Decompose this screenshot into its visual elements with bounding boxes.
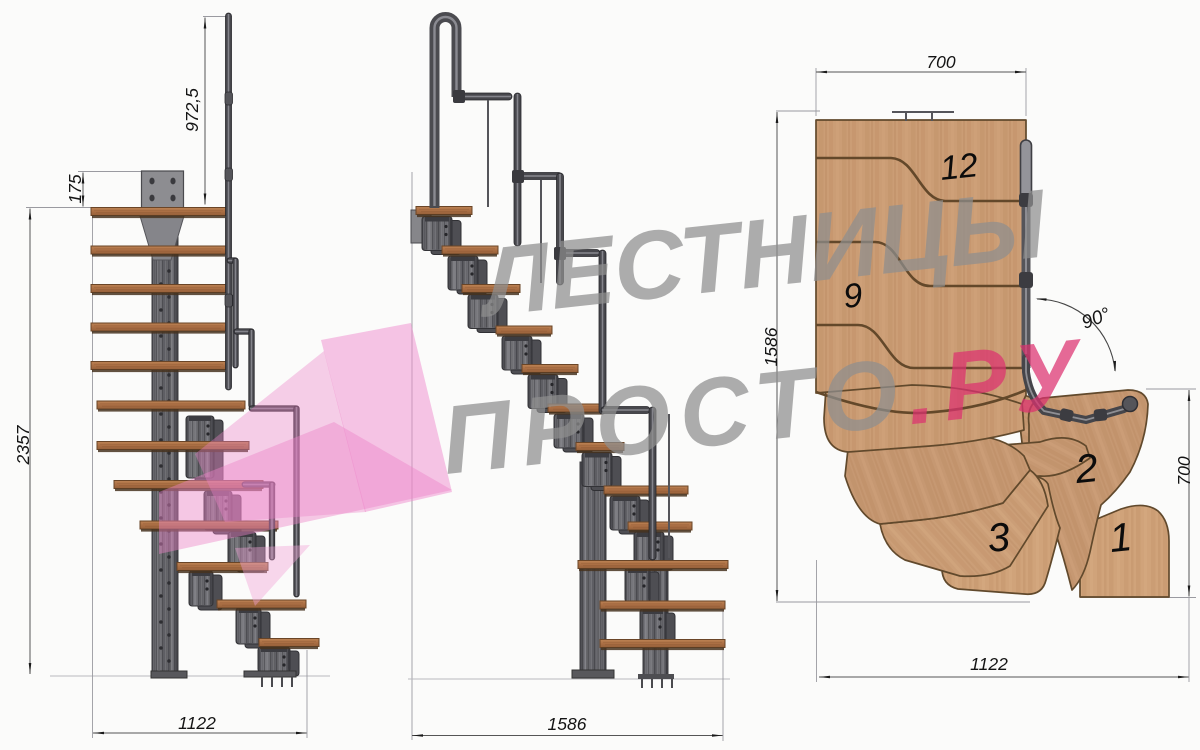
- svg-text:2357: 2357: [13, 424, 33, 465]
- svg-text:3: 3: [985, 515, 1012, 561]
- svg-text:175: 175: [65, 174, 85, 203]
- svg-text:1586: 1586: [548, 714, 587, 734]
- svg-text:700: 700: [1174, 456, 1194, 485]
- svg-text:700: 700: [926, 52, 955, 72]
- svg-text:972,5: 972,5: [182, 88, 202, 132]
- svg-text:1122: 1122: [970, 654, 1008, 674]
- svg-text:2: 2: [1072, 446, 1100, 492]
- svg-text:1122: 1122: [178, 713, 216, 733]
- svg-text:90°: 90°: [1079, 304, 1114, 334]
- svg-text:1: 1: [1107, 515, 1134, 561]
